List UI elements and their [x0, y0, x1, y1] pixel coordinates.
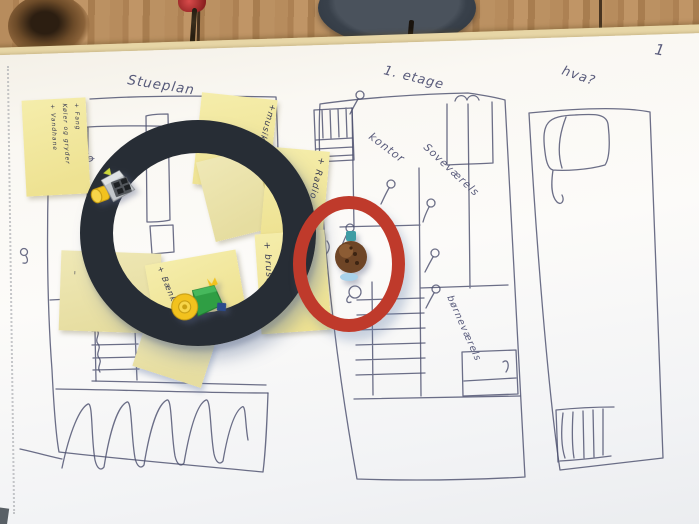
- doodle-tail: [23, 256, 27, 263]
- stray-stroke: [20, 449, 62, 459]
- right-plan-title: hva?: [560, 64, 598, 90]
- left-plan-spring-scribble: [97, 330, 101, 372]
- lego-figure-green: [165, 274, 231, 328]
- chestnut-body: [335, 241, 367, 273]
- room-label-kontor: kontor: [366, 130, 407, 166]
- light-blue-base: [340, 273, 358, 281]
- right-plan-inner: [544, 114, 609, 203]
- photo-scene: Stueplan 1. etage hva? 1 kø Stue kontor …: [0, 0, 699, 524]
- note-line: + Radio: [307, 156, 326, 200]
- teal-cap: [346, 231, 356, 241]
- note-line: + Fang: [73, 103, 81, 131]
- middle-plan-title: 1. etage: [382, 63, 446, 93]
- page-number: 1: [653, 40, 667, 60]
- right-plan-outline: [529, 109, 663, 470]
- note-line: Køler og gryder: [61, 103, 71, 165]
- bedroom-rect: [447, 96, 493, 166]
- doodle-balloon: [21, 249, 28, 256]
- right-plan-stairs: [556, 407, 614, 462]
- note-line: –: [71, 271, 80, 276]
- left-plan-title: Stueplan: [126, 72, 196, 98]
- note-line: + Vandhane: [49, 104, 58, 151]
- chestnut-piece: [333, 230, 371, 282]
- left-plan-band: [56, 381, 268, 393]
- blue-foot: [217, 303, 227, 312]
- sticky-note-kitchen: + Fang Køler og gryder + Vandhane: [22, 97, 91, 196]
- left-plan-shelf: [92, 330, 140, 381]
- room-label-bornevaerelse: børneværels: [444, 294, 483, 363]
- left-plan-zigzag: [62, 400, 248, 469]
- room-label-sovevaerelse: Soveværels: [421, 141, 482, 199]
